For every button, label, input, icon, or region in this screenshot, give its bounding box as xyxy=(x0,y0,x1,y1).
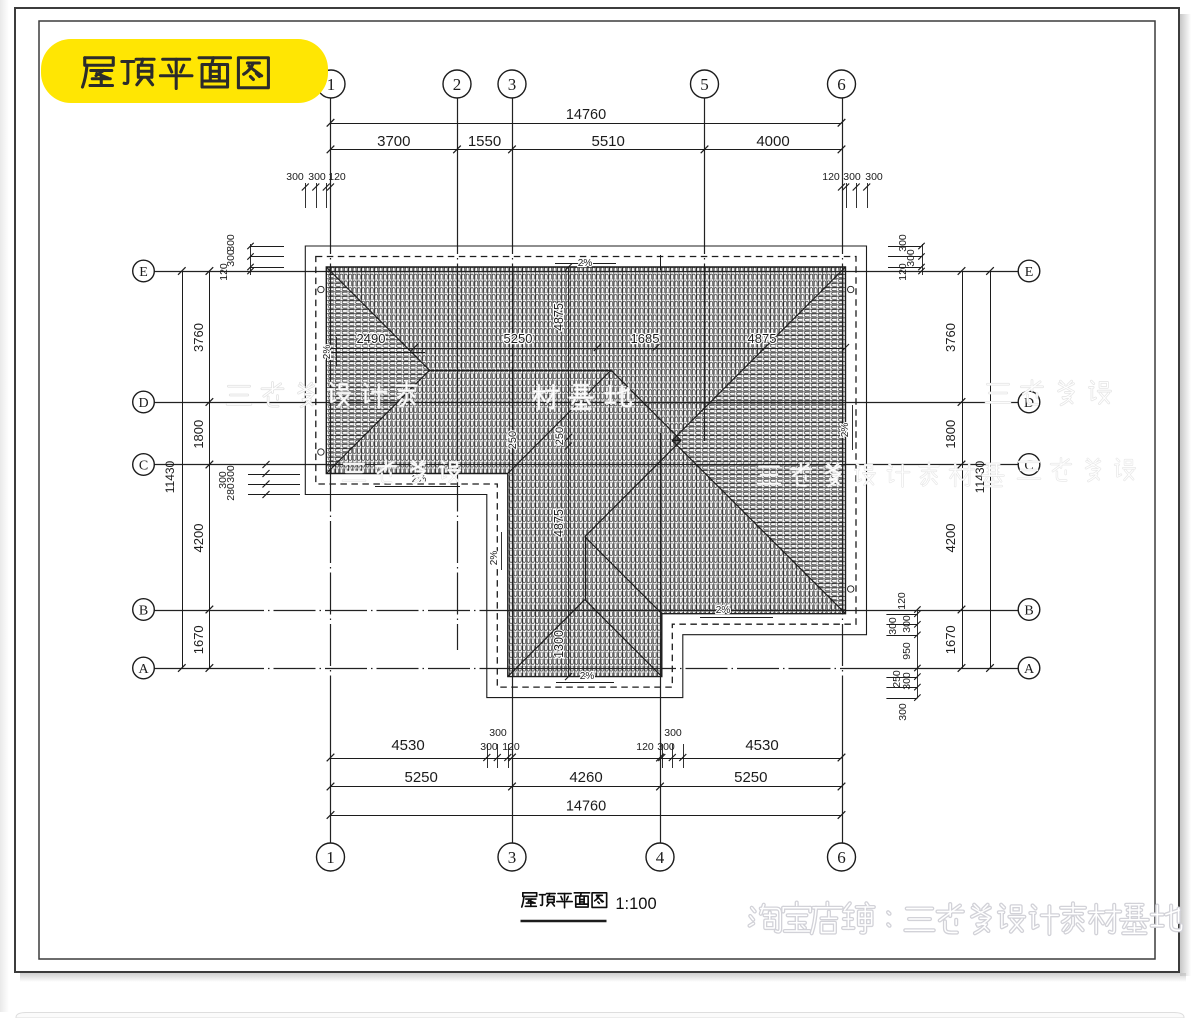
svg-text:5510: 5510 xyxy=(592,133,625,150)
svg-text:5: 5 xyxy=(700,75,709,94)
svg-text:A: A xyxy=(1024,662,1035,677)
svg-text:5250: 5250 xyxy=(504,331,533,346)
svg-text:3700: 3700 xyxy=(377,133,410,150)
svg-text:E: E xyxy=(1025,265,1034,280)
svg-text:300: 300 xyxy=(887,617,899,635)
svg-text:2%: 2% xyxy=(840,423,851,438)
svg-text:1: 1 xyxy=(326,848,335,867)
svg-text:2%: 2% xyxy=(489,551,500,566)
svg-text:2: 2 xyxy=(453,75,462,94)
svg-text:11430: 11430 xyxy=(163,460,177,493)
svg-text:1670: 1670 xyxy=(943,625,958,654)
svg-text:120: 120 xyxy=(897,263,909,281)
svg-text:300: 300 xyxy=(897,234,909,252)
svg-text:2%: 2% xyxy=(578,258,593,269)
svg-text:4: 4 xyxy=(656,848,665,867)
svg-text:120: 120 xyxy=(218,263,230,281)
svg-text:4260: 4260 xyxy=(569,769,602,786)
svg-text:120: 120 xyxy=(502,741,520,753)
svg-text:A: A xyxy=(138,662,149,677)
svg-text:1:100: 1:100 xyxy=(615,895,656,913)
svg-text:300: 300 xyxy=(901,672,913,690)
svg-text:2%: 2% xyxy=(716,605,731,616)
svg-text:5250: 5250 xyxy=(405,769,438,786)
svg-text:300: 300 xyxy=(225,465,237,483)
svg-text:4530: 4530 xyxy=(745,737,778,754)
svg-text:6: 6 xyxy=(837,75,846,94)
svg-text:3: 3 xyxy=(508,848,517,867)
svg-text:300: 300 xyxy=(225,234,237,252)
svg-text:E: E xyxy=(139,265,148,280)
svg-text:300: 300 xyxy=(286,171,304,183)
svg-text:300: 300 xyxy=(489,727,507,739)
svg-text:300: 300 xyxy=(480,741,498,753)
svg-text:300: 300 xyxy=(897,703,909,721)
svg-text:D: D xyxy=(138,396,148,411)
svg-text:6: 6 xyxy=(837,848,846,867)
svg-text:1800: 1800 xyxy=(943,420,958,449)
svg-text:1670: 1670 xyxy=(191,625,206,654)
svg-text:14760: 14760 xyxy=(566,107,606,123)
svg-text:300: 300 xyxy=(843,171,861,183)
svg-text:300: 300 xyxy=(901,615,913,633)
svg-text:C: C xyxy=(139,459,148,474)
svg-text:3: 3 xyxy=(508,75,517,94)
svg-text:300: 300 xyxy=(865,171,883,183)
svg-text:3760: 3760 xyxy=(943,323,958,352)
svg-text:120: 120 xyxy=(896,592,908,610)
svg-text:1800: 1800 xyxy=(191,420,206,449)
svg-text:1550: 1550 xyxy=(468,133,501,150)
svg-text:300: 300 xyxy=(664,727,682,739)
svg-text:1: 1 xyxy=(327,75,336,94)
svg-text:4200: 4200 xyxy=(191,524,206,553)
svg-text:300: 300 xyxy=(308,171,326,183)
svg-text:3760: 3760 xyxy=(191,323,206,352)
svg-text:4875: 4875 xyxy=(552,303,566,331)
svg-text:2%: 2% xyxy=(322,345,333,360)
svg-text:250: 250 xyxy=(554,427,566,445)
svg-text:4200: 4200 xyxy=(943,524,958,553)
svg-text:280: 280 xyxy=(225,483,237,501)
svg-text:B: B xyxy=(139,604,148,619)
svg-text:120: 120 xyxy=(328,171,346,183)
svg-text:5250: 5250 xyxy=(734,769,767,786)
svg-text:300: 300 xyxy=(657,741,675,753)
svg-text:120: 120 xyxy=(822,171,840,183)
svg-text:1685: 1685 xyxy=(631,331,660,346)
svg-text:4875: 4875 xyxy=(552,509,566,537)
svg-text:950: 950 xyxy=(901,642,913,660)
svg-text:4000: 4000 xyxy=(756,133,789,150)
svg-text:120: 120 xyxy=(636,741,654,753)
svg-text:4530: 4530 xyxy=(391,737,424,754)
svg-text:2490: 2490 xyxy=(357,331,386,346)
svg-text:11430: 11430 xyxy=(973,460,987,493)
svg-text:1300: 1300 xyxy=(552,630,566,658)
svg-text:4875: 4875 xyxy=(748,331,777,346)
svg-text:B: B xyxy=(1024,604,1033,619)
svg-text:250: 250 xyxy=(507,431,519,449)
svg-text:2%: 2% xyxy=(580,671,595,682)
svg-text:14760: 14760 xyxy=(566,799,606,815)
